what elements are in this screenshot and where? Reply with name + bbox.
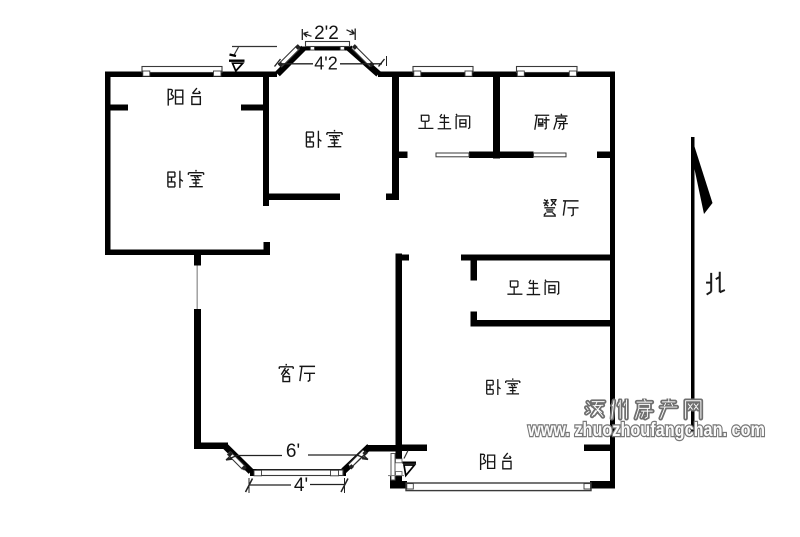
svg-text:6': 6' (286, 441, 300, 462)
svg-text:4'2: 4'2 (314, 54, 337, 74)
svg-text:4': 4' (294, 475, 308, 496)
svg-text:www. zhuozhoufangchan. com: www. zhuozhoufangchan. com (527, 420, 765, 441)
svg-text:2'2: 2'2 (314, 23, 339, 44)
